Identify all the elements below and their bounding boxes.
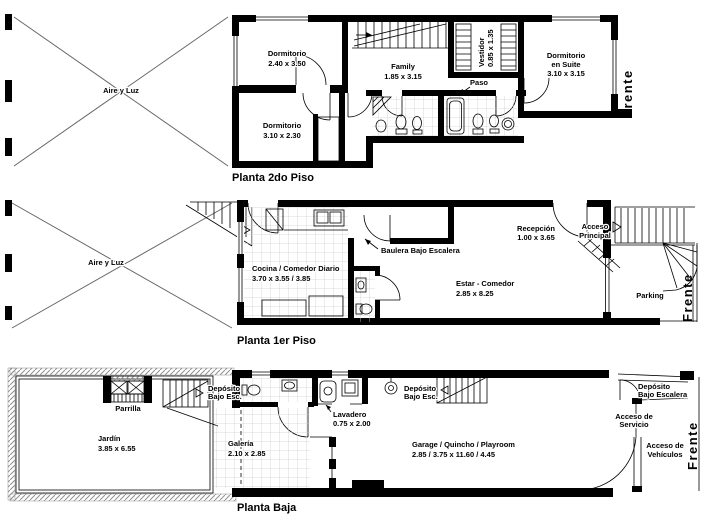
plan-title-2p: Planta 2do Piso: [232, 172, 314, 184]
estar-dims: 2.85 x 8.25: [456, 289, 494, 298]
family-name: Family: [391, 62, 416, 71]
deposito2-2: Bajo Esc.: [404, 392, 438, 401]
bathroom-main: [372, 96, 438, 136]
lavadero-name: Lavadero: [333, 410, 367, 419]
family-dims: 1.85 x 3.15: [384, 72, 422, 81]
parking-label: Parking: [636, 291, 664, 300]
plan-first-floor: Aire y Luz: [5, 200, 697, 347]
air-light-label: Aire y Luz: [103, 86, 139, 95]
plan-ground-floor: Parrilla Jardín 3.85 x 6.55 Depósito Baj…: [8, 368, 700, 514]
paso-label: Paso: [470, 78, 488, 87]
floorplan-drawing: Aire y Luz: [0, 0, 720, 532]
acceso-principal-2: Principal: [579, 231, 611, 240]
laundry: [318, 380, 362, 404]
acceso-principal-1: Acceso: [582, 222, 609, 231]
deposito3-2: Bajo Escalera: [638, 390, 688, 399]
recepcion-name: Recepción: [517, 224, 555, 233]
grill-structure: [103, 376, 152, 403]
frente-label-2p: Frente: [620, 69, 635, 118]
suite-name: Dormitorio: [547, 51, 586, 60]
plan-title-pb: Planta Baja: [237, 502, 297, 514]
gallery: [214, 408, 336, 488]
plan-title-1p: Planta 1er Piso: [237, 335, 316, 347]
dorm2-name: Dormitorio: [263, 121, 302, 130]
garage-dims: 2.85 / 3.75 x 11.60 / 4.45: [412, 450, 495, 459]
cocina-dims: 3.70 x 3.55 / 3.85: [252, 274, 310, 283]
entry-steps: [578, 237, 620, 272]
jardin-dims: 3.85 x 6.55: [98, 444, 136, 453]
suite-dims: 3.10 x 3.15: [547, 69, 585, 78]
floorplan-document: Aire y Luz: [0, 0, 720, 532]
baulera-label: Baulera Bajo Escalera: [381, 246, 461, 255]
frente-label-pb: Frente: [685, 421, 700, 470]
dorm2-dims: 3.10 x 2.30: [263, 131, 301, 140]
bathroom-suite: [444, 96, 518, 136]
garden-boundary: [8, 368, 236, 501]
recepcion-dims: 1.00 x 3.65: [517, 233, 555, 242]
cocina-name: Cocina / Comedor Diario: [252, 264, 340, 273]
party-wall-stubs: [5, 14, 12, 156]
jardin-name: Jardín: [98, 434, 121, 443]
vestidor-name: Vestidor: [477, 37, 486, 67]
toilet-room: [354, 271, 375, 322]
galeria-dims: 2.10 x 2.85: [228, 449, 266, 458]
plan-second-floor: Aire y Luz: [5, 14, 635, 184]
lavadero-dims: 0.75 x 2.00: [333, 419, 371, 428]
vestidor-dims: 0.85 x 1.35: [486, 29, 495, 67]
dorm1-dims: 2.40 x 3.50: [268, 59, 306, 68]
frente-label-1p: Frente: [680, 273, 695, 322]
party-wall-stubs: [5, 200, 12, 320]
acceso-servicio-2: Servicio: [619, 420, 649, 429]
air-light-label: Aire y Luz: [88, 258, 124, 267]
duct-shaft: [318, 117, 339, 161]
garage-name: Garage / Quincho / Playroom: [412, 440, 515, 449]
parrilla-label: Parrilla: [115, 404, 141, 413]
walls: [232, 15, 632, 168]
kitchen: [244, 207, 348, 318]
suite-name2: en Suite: [551, 60, 580, 69]
estar-name: Estar - Comedor: [456, 279, 514, 288]
acceso-vehiculos-1: Acceso de: [646, 441, 684, 450]
deposito1-2: Bajo Esc.: [208, 392, 242, 401]
galeria-name: Galería: [228, 439, 254, 448]
acceso-vehiculos-2: Vehículos: [647, 450, 682, 459]
dorm1-name: Dormitorio: [268, 49, 307, 58]
garden-stair: [163, 380, 208, 407]
staircase: [352, 22, 450, 48]
